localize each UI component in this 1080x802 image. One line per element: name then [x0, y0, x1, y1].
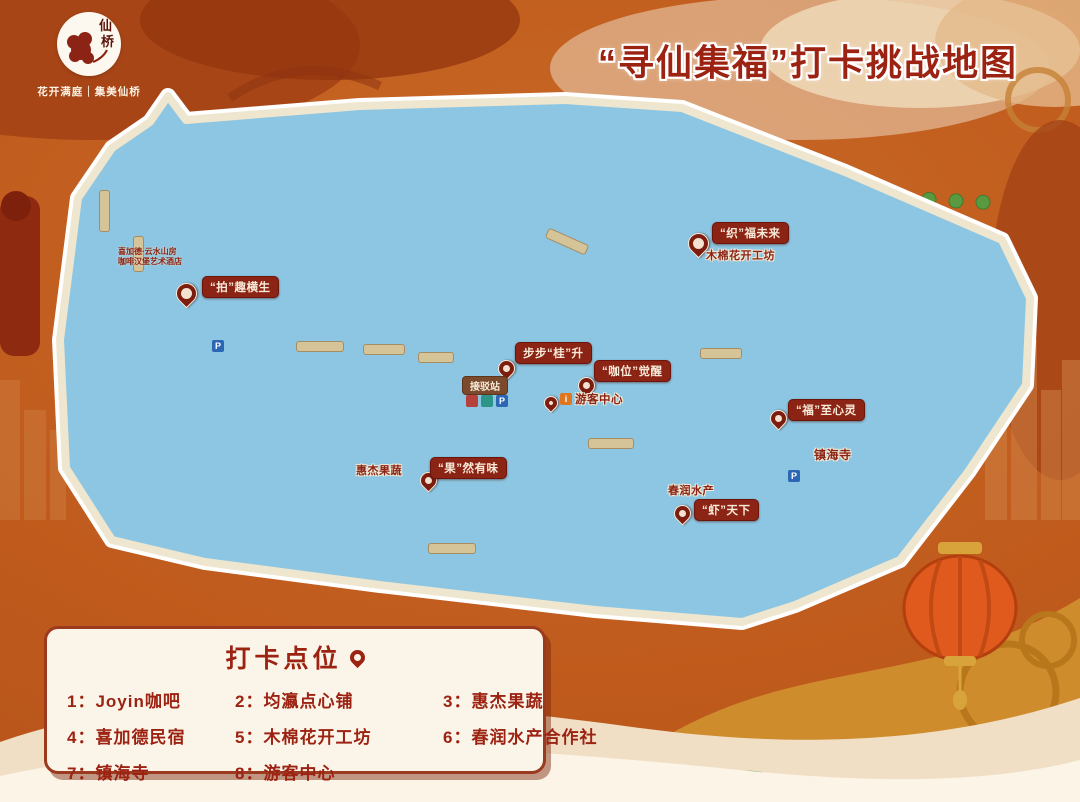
place-label-temple: 镇海寺: [814, 446, 852, 463]
pun-label-pastry: 步步“桂”升: [515, 342, 592, 364]
place-label-grocery: 惠杰果蔬: [356, 462, 402, 478]
pun-label-homestay: “拍”趣横生: [202, 276, 279, 298]
legend-item-2: 2：均瀛点心铺: [235, 687, 443, 712]
logo-flower-icon: 仙 桥: [57, 12, 121, 76]
legend-item-1: 1：Joyin咖吧: [67, 687, 235, 712]
brand-logo: 仙 桥 花开满庭｜集美仙桥: [30, 12, 148, 99]
legend-item-3: 3：惠杰果蔬: [443, 687, 597, 712]
place-label-aquafarm: 春润水产: [668, 482, 714, 498]
parking-icon: P: [496, 395, 508, 407]
service-icon: [466, 395, 478, 407]
brand-tagline: 花开满庭｜集美仙桥: [30, 84, 148, 99]
legend-item-7: 7：镇海寺: [67, 759, 235, 784]
visitor-center-row: i游客中心: [560, 390, 623, 408]
info-icon: i: [560, 393, 572, 405]
orchard-tree-icon: [976, 195, 990, 209]
legend-item-5: 5：木棉花开工坊: [235, 723, 443, 748]
place-label-visitor-center: 游客中心: [575, 394, 623, 406]
hotel-note-line2: 咖啡汉堡艺术酒店: [118, 257, 238, 267]
poster: 仙 桥 花开满庭｜集美仙桥 “寻仙集福”打卡挑战地图 “拍”趣横生 “织”福未来…: [0, 0, 1080, 802]
road-sign: [363, 344, 405, 355]
road-sign: [700, 348, 742, 359]
legend-title: 打卡点位: [225, 639, 341, 675]
svg-text:桥: 桥: [101, 34, 115, 49]
legend-items: 1：Joyin咖吧 2：均瀛点心铺 3：惠杰果蔬 4：喜加德民宿 5：木棉花开工…: [67, 687, 523, 784]
legend-item-4: 4：喜加德民宿: [67, 723, 235, 748]
service-icons: P: [466, 392, 511, 410]
legend-pin-icon: [346, 646, 367, 667]
legend-item-8: 8：游客中心: [235, 759, 443, 784]
hotel-note: 喜加德·云水山房 咖啡汉堡艺术酒店: [118, 247, 238, 267]
road-sign: [418, 352, 454, 363]
parking-icon: P: [212, 340, 224, 352]
pun-label-aquafarm: “虾”天下: [694, 499, 759, 521]
page-title: “寻仙集福”打卡挑战地图: [548, 34, 1068, 86]
pun-label-grocery: “果”然有味: [430, 457, 507, 479]
place-label-workshop: 木棉花开工坊: [706, 247, 775, 263]
legend-item-6: 6：春润水产合作社: [443, 723, 597, 748]
pun-label-temple: “福”至心灵: [788, 399, 865, 421]
road-sign: [588, 438, 634, 449]
road-sign: [428, 543, 476, 554]
legend-box: 打卡点位 1：Joyin咖吧 2：均瀛点心铺 3：惠杰果蔬 4：喜加德民宿 5：…: [44, 626, 546, 774]
hotel-note-line1: 喜加德·云水山房: [118, 247, 238, 257]
road-sign: [99, 190, 110, 232]
legend-title-row: 打卡点位: [67, 639, 523, 675]
pun-label-cafe: “咖位”觉醒: [594, 360, 671, 382]
restroom-icon: [481, 395, 493, 407]
pun-label-workshop: “织”福未来: [712, 222, 789, 244]
orchard-tree-icon: [949, 194, 963, 208]
parking-icon: P: [788, 470, 800, 482]
road-sign: [296, 341, 344, 352]
svg-text:仙: 仙: [99, 18, 112, 33]
